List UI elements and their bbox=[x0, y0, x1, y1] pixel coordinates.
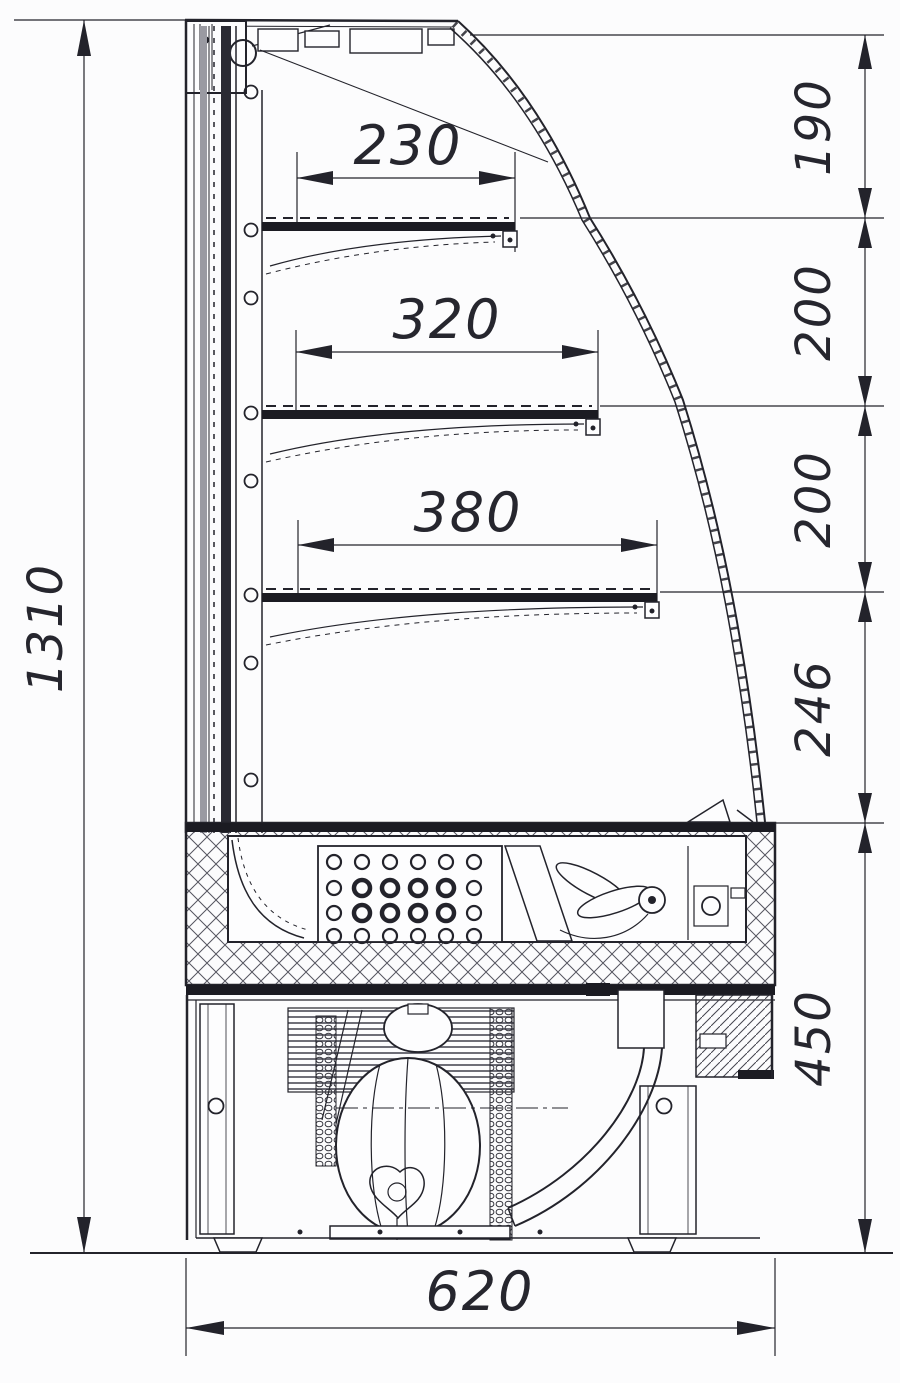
back-panel-gray-layer bbox=[200, 26, 207, 833]
dimension-shelf-380: 380 bbox=[298, 481, 657, 603]
condenser-fin-strip bbox=[316, 1016, 336, 1166]
shelf-top bbox=[262, 218, 517, 274]
dim-label-200-middle: 200 bbox=[786, 450, 842, 548]
perforated-panel bbox=[318, 846, 502, 943]
machine-compartment bbox=[186, 983, 775, 1252]
dim-label-450: 450 bbox=[786, 989, 842, 1087]
canopy-component bbox=[258, 29, 298, 51]
foot-right bbox=[628, 1238, 676, 1252]
dimension-right-chain: 190 200 200 246 450 bbox=[470, 35, 884, 1253]
compressor-base bbox=[330, 1226, 510, 1239]
dim-label-190: 190 bbox=[786, 78, 842, 176]
technical-drawing-page: 1310 190 200 200 246 450 230 bbox=[0, 0, 900, 1383]
dim-label-320: 320 bbox=[392, 288, 501, 351]
arrow-down-icon bbox=[858, 1219, 872, 1253]
dimension-overall-depth: 620 bbox=[186, 1258, 775, 1356]
canopy-component bbox=[305, 31, 339, 47]
dim-label-1310: 1310 bbox=[18, 563, 74, 693]
dimension-overall-height: 1310 bbox=[14, 20, 196, 1253]
pipe-elbow bbox=[618, 990, 664, 1048]
right-side-panel bbox=[640, 1086, 696, 1234]
glass-front bbox=[450, 21, 765, 822]
arrow-up-icon bbox=[77, 20, 91, 56]
foot-left bbox=[214, 1238, 262, 1252]
dim-label-200-upper: 200 bbox=[786, 263, 842, 361]
arrow-up-icon bbox=[858, 35, 872, 69]
display-case-section-drawing: 1310 190 200 200 246 450 230 bbox=[0, 0, 900, 1383]
dim-label-380: 380 bbox=[413, 481, 522, 544]
dimension-shelf-230: 230 bbox=[297, 114, 515, 252]
shelf-middle bbox=[262, 406, 600, 462]
shelf-bottom bbox=[262, 589, 659, 645]
condenser-fin-strip bbox=[490, 1008, 512, 1240]
back-panel bbox=[186, 20, 262, 833]
dim-label-620: 620 bbox=[425, 1260, 534, 1323]
back-panel-screws bbox=[245, 86, 258, 787]
compartment-top bbox=[186, 985, 775, 995]
dim-label-246: 246 bbox=[786, 659, 842, 757]
rim-bracket bbox=[688, 800, 730, 822]
well-section bbox=[186, 800, 775, 985]
well-rim bbox=[186, 823, 775, 832]
dim-label-230: 230 bbox=[353, 114, 462, 177]
back-panel-black-layer bbox=[221, 26, 231, 833]
dimension-shelf-320: 320 bbox=[296, 288, 598, 422]
arrow-down-icon bbox=[77, 1217, 91, 1253]
lamp-housing bbox=[350, 29, 422, 53]
left-side-panel bbox=[200, 1004, 234, 1234]
canopy-component bbox=[428, 29, 454, 45]
